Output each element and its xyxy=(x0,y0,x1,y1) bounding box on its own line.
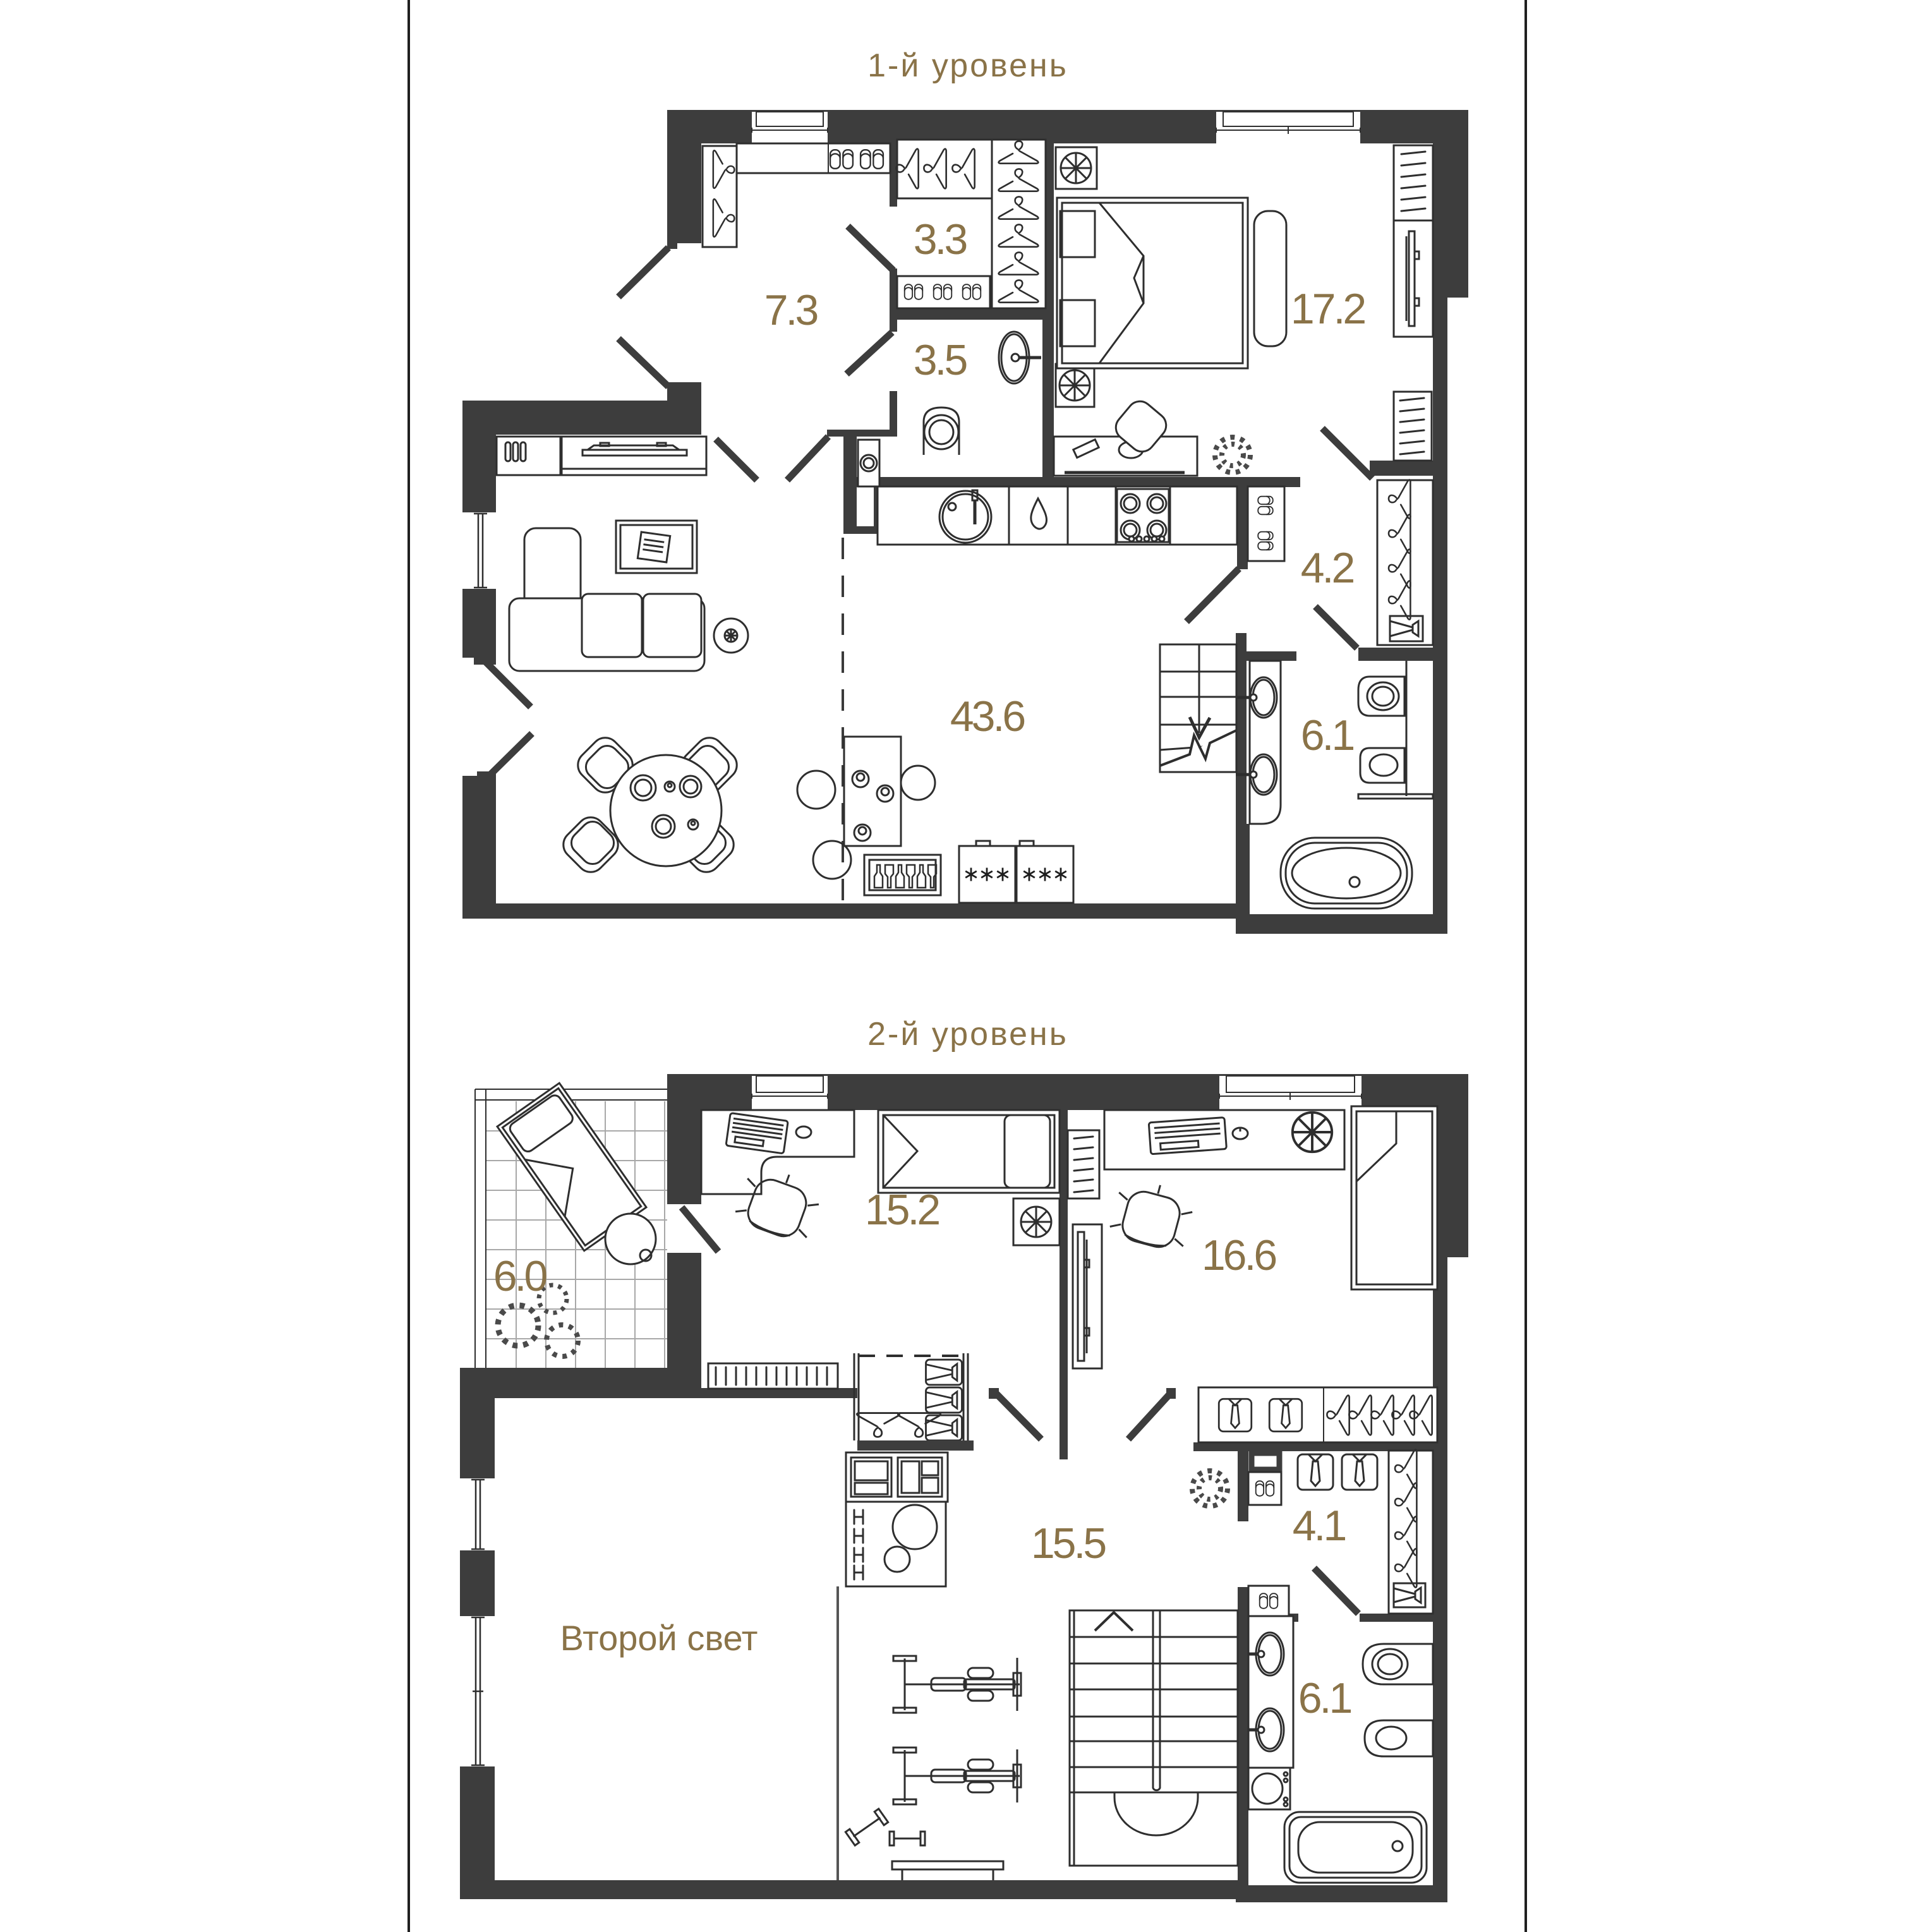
svg-text:Второй свет: Второй свет xyxy=(560,1618,758,1658)
svg-text:6.0: 6.0 xyxy=(493,1252,547,1300)
svg-text:6.1: 6.1 xyxy=(1301,711,1354,759)
svg-text:3.5: 3.5 xyxy=(914,336,967,384)
svg-text:7.3: 7.3 xyxy=(764,286,818,334)
svg-text:16.6: 16.6 xyxy=(1202,1231,1276,1279)
svg-text:1-й уровень: 1-й уровень xyxy=(867,47,1068,84)
svg-text:3.3: 3.3 xyxy=(914,215,967,263)
svg-text:43.6: 43.6 xyxy=(950,692,1025,740)
svg-text:2-й уровень: 2-й уровень xyxy=(867,1016,1068,1053)
svg-text:15.5: 15.5 xyxy=(1031,1519,1106,1567)
svg-text:6.1: 6.1 xyxy=(1298,1674,1351,1722)
svg-text:4.2: 4.2 xyxy=(1301,544,1354,592)
svg-text:4.1: 4.1 xyxy=(1293,1502,1346,1550)
svg-text:17.2: 17.2 xyxy=(1291,285,1365,333)
